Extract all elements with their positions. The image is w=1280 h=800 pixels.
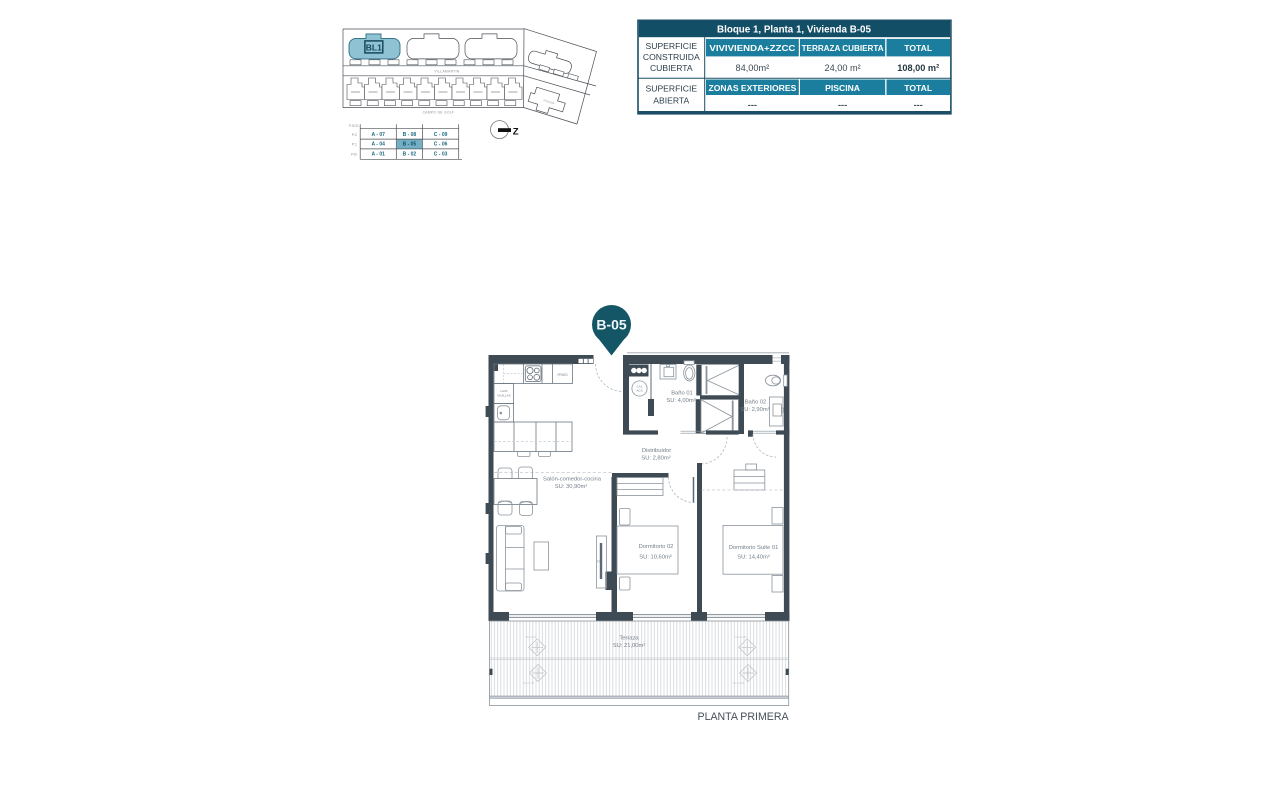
svg-text:B - 02: B - 02 [403, 151, 417, 157]
svg-text:---: --- [838, 100, 847, 110]
svg-text:---: --- [914, 100, 923, 110]
svg-text:ABIERTA: ABIERTA [653, 96, 689, 106]
svg-text:SU: 21,00m²: SU: 21,00m² [613, 643, 646, 649]
svg-text:CONSTRUIDA: CONSTRUIDA [643, 52, 700, 62]
svg-text:CUBIERTA: CUBIERTA [650, 63, 693, 73]
svg-text:B - 05: B - 05 [403, 142, 417, 148]
svg-text:SU: 10,60m²: SU: 10,60m² [639, 555, 672, 561]
svg-text:Me-01.08: Me-01.08 [523, 681, 535, 685]
svg-text:---: --- [748, 100, 757, 110]
svg-text:SU: 14,40m²: SU: 14,40m² [737, 555, 770, 561]
svg-text:SU: 2,80m²: SU: 2,80m² [641, 456, 670, 462]
svg-text:TOTAL: TOTAL [904, 83, 932, 93]
svg-text:Salón-comedor-cocina: Salón-comedor-cocina [543, 477, 602, 483]
svg-text:SUPERFICIE: SUPERFICIE [646, 41, 698, 51]
svg-text:VIVIVIENDA+ZZCC: VIVIVIENDA+ZZCC [709, 43, 795, 53]
svg-text:P.1: P.1 [352, 143, 357, 147]
svg-text:B-05: B-05 [596, 317, 627, 333]
svg-text:Baño 01: Baño 01 [671, 391, 693, 397]
svg-text:B - 08: B - 08 [403, 132, 417, 138]
svg-text:PISCINA: PISCINA [825, 83, 860, 93]
svg-text:Terraza: Terraza [619, 636, 639, 642]
svg-text:VAJILLAS: VAJILLAS [497, 393, 510, 397]
svg-text:FRIGO: FRIGO [557, 373, 568, 377]
svg-text:P.SOL: P.SOL [349, 124, 359, 128]
svg-text:Bloque 1, Planta 1, Vivienda B: Bloque 1, Planta 1, Vivienda B-05 [717, 25, 871, 36]
svg-text:TV: TV [597, 560, 602, 564]
svg-text:SU: 30,90m²: SU: 30,90m² [555, 484, 588, 490]
svg-text:ACS: ACS [636, 389, 642, 393]
svg-text:ZONAS EXTERIORES: ZONAS EXTERIORES [708, 83, 796, 93]
svg-text:Me-01.08: Me-01.08 [526, 635, 538, 639]
svg-text:TERRAZA CUBIERTA: TERRAZA CUBIERTA [802, 43, 884, 53]
svg-text:Distribuidor: Distribuidor [642, 448, 671, 454]
svg-text:Z: Z [513, 127, 519, 138]
svg-text:A - 01: A - 01 [371, 151, 385, 157]
svg-text:TOTAL: TOTAL [904, 43, 932, 53]
svg-text:C - 06: C - 06 [434, 142, 448, 148]
svg-text:SUPERFICIE: SUPERFICIE [646, 84, 698, 94]
svg-text:Me-01.08: Me-01.08 [733, 681, 745, 685]
svg-text:C - 03: C - 03 [434, 151, 448, 157]
svg-text:SU: 4,00m²: SU: 4,00m² [666, 398, 695, 404]
svg-text:BL1: BL1 [366, 42, 382, 52]
svg-text:Dormitorio 02: Dormitorio 02 [639, 544, 674, 550]
svg-text:108,00 m²: 108,00 m² [897, 63, 939, 73]
svg-text:C - 09: C - 09 [434, 132, 448, 138]
svg-text:Dormitorio Suite 01: Dormitorio Suite 01 [729, 545, 779, 551]
svg-text:Baño 02: Baño 02 [745, 400, 767, 406]
svg-text:A - 07: A - 07 [371, 132, 385, 138]
svg-text:P.B: P.B [351, 152, 357, 156]
svg-text:24,00 m²: 24,00 m² [824, 63, 860, 73]
svg-text:VILLAMARTIN: VILLAMARTIN [434, 70, 460, 74]
svg-text:A - 04: A - 04 [371, 142, 385, 148]
svg-text:P.2: P.2 [352, 133, 357, 137]
svg-text:SU: 2,90m²: SU: 2,90m² [740, 407, 769, 413]
svg-text:CAMPO DE GOLF: CAMPO DE GOLF [423, 111, 455, 115]
svg-text:Me-01.08: Me-01.08 [736, 635, 748, 639]
svg-text:84,00m²: 84,00m² [736, 63, 770, 73]
